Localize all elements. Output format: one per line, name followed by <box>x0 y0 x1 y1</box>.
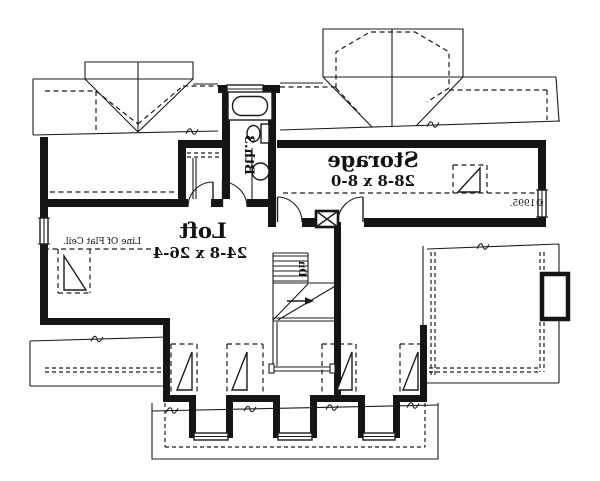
dormer-right <box>323 29 463 127</box>
stairs-down-label: Dn <box>296 260 307 277</box>
chase-box <box>316 211 338 227</box>
wall-loft-north <box>40 199 188 207</box>
stair-railing <box>269 322 335 373</box>
wall-left-lower <box>40 244 48 323</box>
window-left-wall <box>38 218 50 244</box>
floor-plan-drawing: Storage 28-8 x 8-0 Loft 24-8 x 26-4 Bth.… <box>0 0 600 481</box>
door-closet <box>188 182 213 207</box>
bathtub <box>228 92 272 120</box>
windows <box>38 85 548 440</box>
floor-plan-sheet: Storage 28-8 x 8-0 Loft 24-8 x 26-4 Bth.… <box>0 0 600 481</box>
wall-bath-south <box>247 199 268 207</box>
roof-lower-left <box>30 337 167 386</box>
vent-triangle-bay-1 <box>177 352 192 390</box>
loft-room-label: Loft <box>179 218 227 243</box>
roof-left-eave <box>33 79 85 135</box>
dormer-left <box>85 62 193 132</box>
wall-right <box>538 148 546 190</box>
wall-bottom-left <box>40 318 170 325</box>
roof-ridge-line <box>33 121 560 135</box>
vent-triangle-bay-4 <box>403 352 418 390</box>
vent-triangle-bay-2 <box>232 352 247 390</box>
roof-right-eave <box>463 77 559 121</box>
vent-triangle-loft <box>64 256 86 290</box>
wall-closet-north <box>178 140 222 148</box>
chimney <box>542 274 568 319</box>
vent-triangle-storage <box>458 168 480 192</box>
window-bay-2 <box>278 433 312 440</box>
roof-lower-right <box>423 244 559 383</box>
door-storage-1 <box>278 197 303 222</box>
window-bay-3 <box>363 433 395 440</box>
roof-eave-mid <box>193 83 323 84</box>
break-marks <box>91 122 489 414</box>
door-storage-2 <box>338 197 363 222</box>
loft-room-dims: 24-8 x 26-4 <box>153 244 247 262</box>
wall-closet-west <box>178 148 186 207</box>
wall-bay-riser-right <box>420 325 427 402</box>
storage-room-dims: 28-8 x 8-0 <box>331 172 415 190</box>
wall-storage-south <box>364 218 546 227</box>
bath-room-label: Bth.3 <box>241 135 256 175</box>
copyright-label: ©1995. <box>509 199 544 209</box>
flat-ceiling-label: Line Of Flat Ceil. <box>63 237 141 247</box>
window-bay-1 <box>194 433 228 440</box>
wall-bay-riser-left <box>163 325 170 402</box>
storage-room-label: Storage <box>327 147 419 172</box>
